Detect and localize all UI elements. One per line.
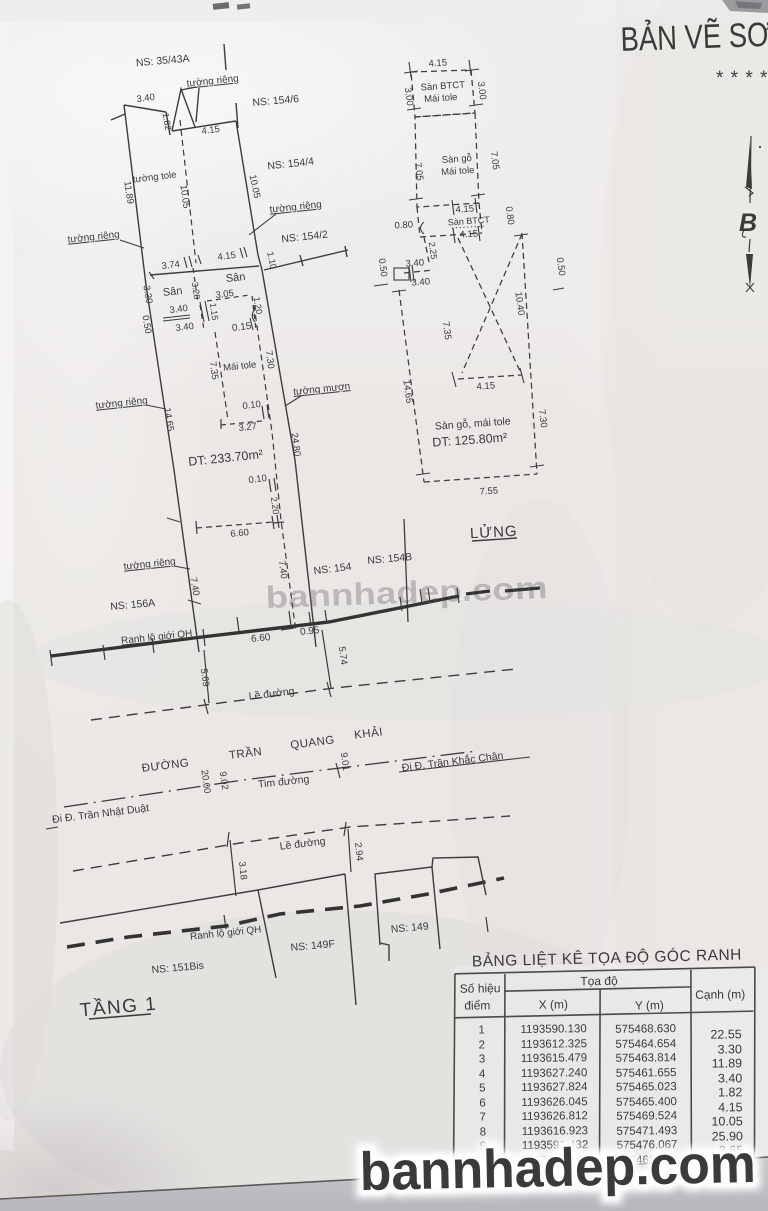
svg-text:575465.400: 575465.400 [616,1096,677,1109]
svg-text:8: 8 [480,1126,487,1138]
svg-text:Y (m): Y (m) [635,998,664,1012]
svg-text:3.40: 3.40 [718,1071,743,1085]
svg-text:Sân: Sân [162,285,183,299]
svg-text:Tọa độ: Tọa độ [580,974,618,988]
svg-text:575461.655: 575461.655 [616,1067,677,1080]
svg-text:Cạnh (m): Cạnh (m) [695,987,745,1002]
svg-text:575463.814: 575463.814 [616,1052,678,1065]
svg-text:Sàn gỗ: Sàn gỗ [441,153,472,166]
svg-text:1193627.824: 1193627.824 [521,1081,588,1094]
svg-text:3.40: 3.40 [411,276,430,288]
svg-text:575464.654: 575464.654 [615,1038,677,1051]
svg-text:2: 2 [479,1039,486,1051]
svg-text:1193612.325: 1193612.325 [521,1038,587,1051]
svg-text:11.89: 11.89 [712,1056,743,1070]
svg-text:7.55: 7.55 [479,485,498,497]
svg-text:4.15: 4.15 [217,250,237,263]
svg-text:5: 5 [479,1082,486,1094]
svg-text:1193616.923: 1193616.923 [522,1125,588,1138]
svg-text:Mái tole: Mái tole [424,92,458,105]
svg-text:1.82: 1.82 [718,1085,743,1099]
svg-text:6: 6 [479,1097,486,1109]
svg-text:10.05: 10.05 [711,1114,742,1128]
svg-text:bannhadep.com: bannhadep.com [359,1134,756,1202]
svg-text:3.30: 3.30 [717,1042,742,1056]
svg-text:B: B [739,209,757,237]
svg-text:3.40: 3.40 [175,321,195,334]
svg-text:575465.023: 575465.023 [616,1081,677,1094]
svg-text:1193626.812: 1193626.812 [521,1110,587,1123]
svg-text:điểm: điểm [464,998,490,1012]
svg-text:1: 1 [478,1024,485,1036]
svg-text:0.10: 0.10 [242,399,262,412]
svg-text:2.94: 2.94 [352,842,365,862]
svg-text:3.40: 3.40 [169,303,189,316]
svg-text:X (m): X (m) [539,997,568,1011]
svg-text:BẢN VẼ SƠ: BẢN VẼ SƠ [620,16,768,59]
svg-text:4.15: 4.15 [455,203,474,215]
svg-text:3.05: 3.05 [215,288,235,301]
svg-text:1193590.130: 1193590.130 [520,1023,586,1036]
svg-text:3.18: 3.18 [236,861,249,881]
svg-text:0.80: 0.80 [394,219,413,231]
svg-text:6.60: 6.60 [250,632,271,645]
svg-text:4.15: 4.15 [718,1100,743,1114]
svg-text:Số hiệu: Số hiệu [460,981,501,995]
svg-text:4.15: 4.15 [428,57,447,69]
svg-text:22.55: 22.55 [710,1027,741,1041]
svg-text:4: 4 [479,1068,486,1080]
svg-text:Sân: Sân [225,271,246,285]
svg-text:1193626.045: 1193626.045 [521,1096,587,1109]
svg-text:575468.630: 575468.630 [615,1023,676,1036]
svg-text:7: 7 [479,1111,486,1123]
svg-text:Mái tole: Mái tole [441,165,475,178]
svg-text:* * * * *: * * * * * [716,68,768,89]
svg-text:4.15: 4.15 [459,228,478,240]
svg-text:4.15: 4.15 [201,124,221,137]
svg-text:575469.524: 575469.524 [616,1110,678,1123]
svg-text:3.40: 3.40 [405,257,424,269]
svg-text:0.10: 0.10 [248,473,268,486]
svg-text:6.60: 6.60 [230,527,250,540]
svg-text:1193615.479: 1193615.479 [521,1052,587,1065]
svg-text:3.27: 3.27 [238,421,258,434]
svg-text:0.95: 0.95 [299,625,320,638]
svg-text:3: 3 [479,1053,486,1065]
svg-text:4.15: 4.15 [476,380,495,392]
svg-text:1193627.240: 1193627.240 [521,1067,587,1080]
svg-text:3.74: 3.74 [161,259,181,272]
svg-text:3.40: 3.40 [136,92,156,105]
